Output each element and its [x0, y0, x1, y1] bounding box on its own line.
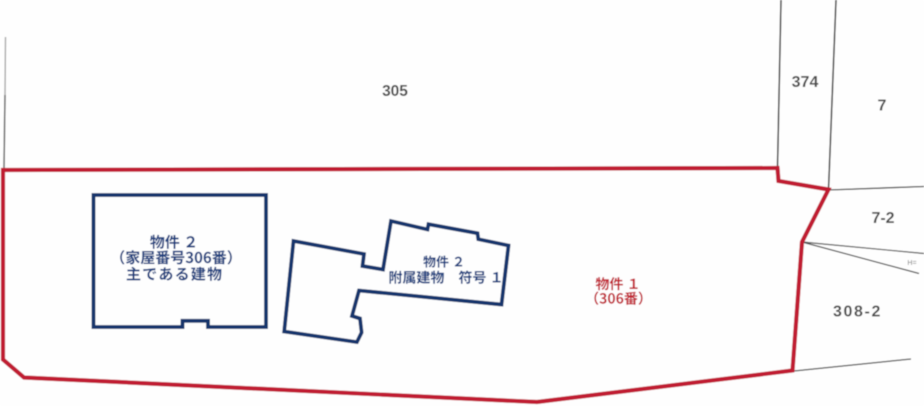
svg-text:7-2: 7-2 [871, 210, 894, 227]
svg-text:374: 374 [792, 74, 819, 91]
svg-text:305: 305 [382, 83, 408, 100]
svg-text:H=: H= [907, 260, 916, 267]
svg-text:308-2: 308-2 [833, 304, 882, 321]
svg-text:7: 7 [878, 98, 887, 115]
